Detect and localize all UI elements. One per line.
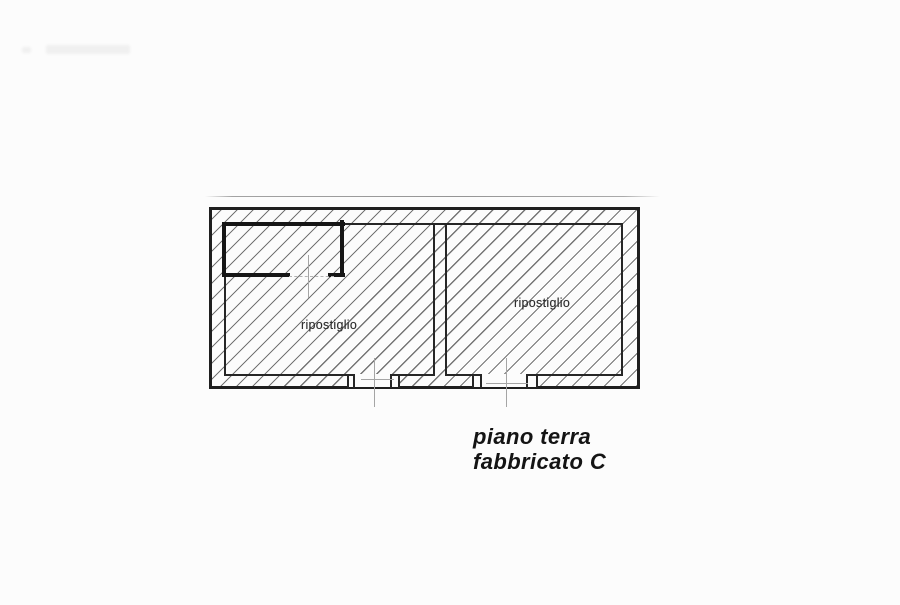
right-door-axis-horizontal — [486, 383, 528, 384]
inner-wall-bottom-segment — [400, 374, 433, 376]
outer-wall-left — [209, 207, 212, 389]
door-jamb — [526, 374, 528, 388]
closet-wall-top — [222, 222, 345, 226]
scan-smudge — [22, 47, 31, 53]
caption-line-2: fabbricato C — [473, 449, 606, 474]
inner-wall-bottom-segment — [447, 374, 472, 376]
left-door-axis-vertical — [374, 358, 375, 407]
faint-scan-line — [205, 196, 660, 197]
room-label-left: ripostiglio — [301, 318, 357, 332]
door-jamb — [390, 374, 392, 388]
caption-line-1: piano terra — [473, 424, 606, 449]
closet-wall-left — [222, 222, 226, 277]
door-jamb — [480, 374, 482, 388]
room-label-right: ripostiglio — [514, 296, 570, 310]
scan-smudge — [46, 45, 130, 54]
building-outline — [209, 207, 640, 389]
outer-wall-right — [637, 207, 640, 389]
outer-wall-bottom — [209, 386, 640, 389]
door-jamb — [347, 374, 349, 388]
closet-wall-bottom — [222, 273, 290, 277]
inner-wall-bottom-segment — [224, 374, 347, 376]
partition-wall-left-edge — [433, 223, 435, 376]
floor-plan-drawing: ripostiglio ripostiglio piano terra fabb… — [0, 0, 900, 605]
door-jamb — [536, 374, 538, 388]
door-jamb — [398, 374, 400, 388]
left-door-axis-horizontal — [361, 379, 394, 380]
outer-wall-top — [209, 207, 640, 210]
door-jamb — [472, 374, 474, 388]
closet-wall-right — [340, 220, 344, 277]
door-jamb — [353, 374, 355, 388]
inner-wall-bottom-segment — [538, 374, 623, 376]
inner-wall-right — [621, 223, 623, 376]
plan-caption: piano terra fabbricato C — [473, 424, 606, 474]
partition-wall-right-edge — [445, 223, 447, 376]
closet-door-axis-horizontal — [289, 276, 334, 277]
